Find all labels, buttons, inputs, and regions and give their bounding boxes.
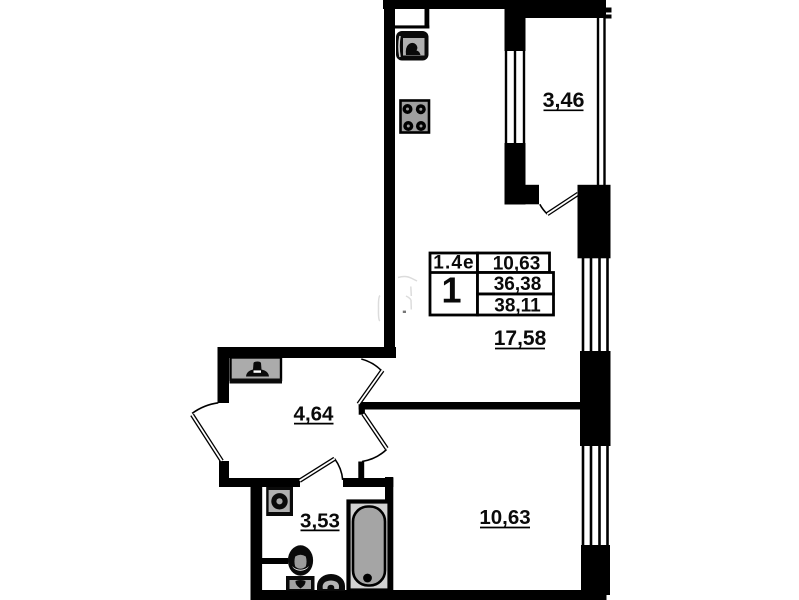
svg-text:36,38: 36,38 — [494, 274, 542, 295]
svg-text:10,63: 10,63 — [479, 506, 530, 529]
svg-text:38,11: 38,11 — [494, 296, 541, 317]
svg-text:4,64: 4,64 — [294, 403, 334, 426]
svg-text:10,63: 10,63 — [493, 254, 541, 275]
svg-text:3,53: 3,53 — [300, 509, 340, 532]
svg-text:17,58: 17,58 — [494, 327, 547, 350]
svg-text:1: 1 — [441, 270, 461, 311]
svg-text:3,46: 3,46 — [543, 88, 585, 112]
